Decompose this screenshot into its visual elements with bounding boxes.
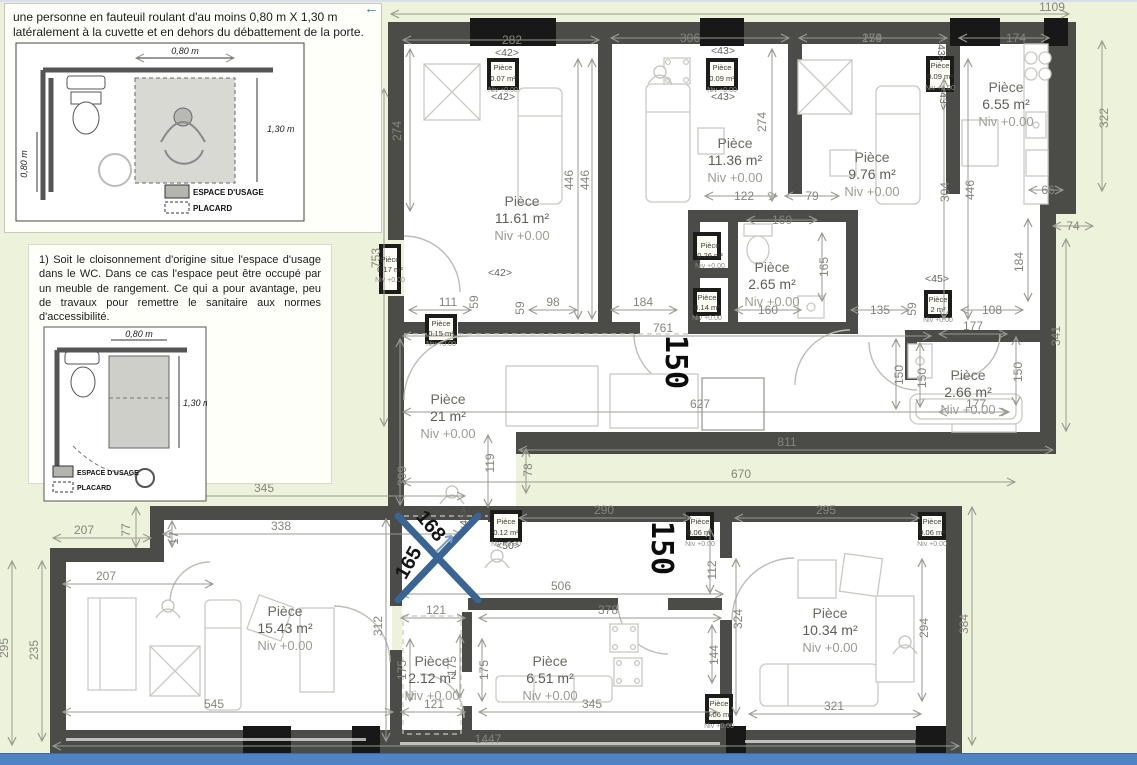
dim-label: 207 <box>74 523 94 537</box>
dim-label: 144 <box>707 645 721 665</box>
wc-sketch-1: 0,80 m 1,30 m 0,80 m ESPACE D'USAGE PLAC… <box>15 42 305 222</box>
svg-text:21 m²: 21 m² <box>430 408 466 424</box>
svg-text:Niv +0.00: Niv +0.00 <box>375 277 405 284</box>
dim-label: 378 <box>598 603 618 617</box>
dim-label: 121 <box>426 603 446 617</box>
svg-text:9.76 m²: 9.76 m² <box>848 166 896 182</box>
opening-marker: <45> <box>925 273 949 285</box>
dim-label: 59 <box>905 302 919 316</box>
svg-text:0.12 m²: 0.12 m² <box>493 528 519 537</box>
svg-text:0.17 m²: 0.17 m² <box>377 265 403 274</box>
dim-label: 282 <box>502 33 522 47</box>
dim-label: 79 <box>805 189 819 203</box>
svg-text:Niv +0.00: Niv +0.00 <box>707 170 762 185</box>
dim-label: 235 <box>27 640 41 660</box>
dim-label: 274 <box>755 112 769 132</box>
floorplan-page: 1109 1447 282 306 174 174 259 322 274 27… <box>0 0 1137 765</box>
svg-text:Niv +0.00: Niv +0.00 <box>923 317 953 324</box>
dim-label: 59 <box>513 301 527 315</box>
legend-placard-label: PLACARD <box>77 485 111 492</box>
svg-text:Pièce: Pièce <box>713 63 732 72</box>
dim-label: 295 <box>0 638 11 658</box>
dim-label: 670 <box>731 467 751 481</box>
svg-text:Pièce: Pièce <box>430 391 465 407</box>
dim-label: 338 <box>271 519 291 533</box>
dim-label: 78 <box>521 463 535 477</box>
svg-text:Pièce: Pièce <box>923 517 942 526</box>
dim-label: 506 <box>551 579 571 593</box>
dim-label: 175 <box>395 660 409 680</box>
note-text-1: une personne en fauteuil roulant d'au mo… <box>13 10 373 40</box>
dim-label: 74 <box>1066 219 1080 233</box>
back-arrow-icon: ← <box>364 0 379 17</box>
svg-text:Niv +0.00: Niv +0.00 <box>704 723 734 730</box>
svg-text:0.06 m²: 0.06 m² <box>706 710 732 719</box>
svg-text:Pièce: Pièce <box>950 367 985 383</box>
legend-swatch-usage <box>165 185 189 198</box>
svg-text:0.26 m²: 0.26 m² <box>697 251 723 260</box>
svg-text:Pièce: Pièce <box>701 241 720 250</box>
svg-text:Pièce: Pièce <box>929 295 948 304</box>
svg-text:Niv +0.00: Niv +0.00 <box>844 184 899 199</box>
dim-label: 174 <box>1006 31 1026 45</box>
toilet <box>73 102 99 134</box>
sink <box>67 76 105 89</box>
svg-text:2.66 m²: 2.66 m² <box>944 384 992 400</box>
legend-placard-label: PLACARD <box>193 204 232 213</box>
dim-label: 122 <box>734 189 754 203</box>
dim-label: 119 <box>483 453 497 472</box>
svg-text:Pièce: Pièce <box>497 517 516 526</box>
dim-label: 322 <box>1097 108 1111 128</box>
svg-text:0.14 m²: 0.14 m² <box>694 303 720 312</box>
svg-text:Niv +0.00: Niv +0.00 <box>978 114 1033 129</box>
dim-label: 177 <box>963 319 983 333</box>
dim-label: 399 <box>395 466 409 486</box>
svg-text:0.09 m²: 0.09 m² <box>927 72 953 81</box>
dim-label: 312 <box>371 616 385 636</box>
svg-text:0.06 m²: 0.06 m² <box>919 528 945 537</box>
svg-text:Pièce: Pièce <box>698 293 717 302</box>
dim-label: 112 <box>705 560 719 579</box>
inset-dim-right: 1,30 m <box>267 124 295 134</box>
svg-text:6.51 m²: 6.51 m² <box>526 670 574 686</box>
svg-text:Pièce: Pièce <box>532 653 567 669</box>
svg-text:Pièce: Pièce <box>812 605 847 621</box>
dim-label: 175 <box>477 660 491 680</box>
svg-text:Pièce: Pièce <box>754 259 789 275</box>
svg-text:Niv +0.00: Niv +0.00 <box>404 688 459 703</box>
dim-label: 108 <box>982 303 1002 317</box>
opening-marker: <43> <box>935 38 947 62</box>
dim-label: 66 <box>1041 183 1055 197</box>
svg-text:Niv +0.00: Niv +0.00 <box>802 640 857 655</box>
svg-text:Pièce: Pièce <box>931 61 950 70</box>
svg-text:Niv +0.00: Niv +0.00 <box>917 541 947 548</box>
svg-text:2 m²: 2 m² <box>931 305 947 314</box>
svg-text:Niv +0.00: Niv +0.00 <box>420 426 475 441</box>
svg-text:Niv +0.00: Niv +0.00 <box>257 638 312 653</box>
svg-text:0.06 m²: 0.06 m² <box>687 528 713 537</box>
dim-label: 98 <box>546 295 560 309</box>
svg-text:Niv +0.00: Niv +0.00 <box>522 688 577 703</box>
inset-dim-left: 0,80 m <box>19 150 29 178</box>
svg-text:Pièce: Pièce <box>988 79 1023 95</box>
opening-marker: <43> <box>711 45 735 57</box>
legend-swatch-usage <box>53 466 73 477</box>
svg-text:Niv +0.00: Niv +0.00 <box>940 402 995 417</box>
svg-text:Pièce: Pièce <box>381 255 400 264</box>
svg-text:2.65 m²: 2.65 m² <box>748 276 796 292</box>
big-dim-label: 150 <box>658 335 693 389</box>
dim-label: 290 <box>594 503 614 517</box>
toilet <box>71 367 95 397</box>
svg-text:Niv +0.00: Niv +0.00 <box>925 85 955 92</box>
inset-dim-top: 0,80 m <box>125 329 153 339</box>
legend-usage-label: ESPACE D'USAGE <box>77 470 139 477</box>
svg-text:Pièce: Pièce <box>494 63 513 72</box>
dim-label: 306 <box>680 31 700 45</box>
dim-label: 341 <box>1049 326 1063 346</box>
dim-label: 207 <box>96 569 116 583</box>
wc-sketch-2: 0,80 m 1,30 m ESPACE D'USAGE PLACARD <box>43 326 207 502</box>
dim-label: 184 <box>1012 252 1026 272</box>
legend-swatch-placard <box>165 202 189 213</box>
bottom-scrollbar[interactable] <box>0 753 1137 765</box>
legend-usage-label: ESPACE D'USAGE <box>193 188 264 197</box>
dim-label: 304 <box>938 182 952 202</box>
svg-text:2.12 m²: 2.12 m² <box>408 670 456 686</box>
dim-label: 150 <box>915 368 929 388</box>
dim-label: 160 <box>772 213 792 227</box>
usage-area <box>109 356 169 448</box>
svg-text:Niv +0.00: Niv +0.00 <box>488 87 518 94</box>
dim-label: 321 <box>824 699 844 713</box>
dim-label: 17 <box>167 531 181 545</box>
svg-text:Niv +0.00: Niv +0.00 <box>491 541 521 548</box>
dim-label: 811 <box>777 435 796 449</box>
dim-label: 135 <box>870 303 890 317</box>
dim-label: 111 <box>439 295 458 309</box>
svg-text:6.55 m²: 6.55 m² <box>982 96 1030 112</box>
svg-text:0.15 m²: 0.15 m² <box>428 329 454 338</box>
svg-text:Pièce: Pièce <box>691 517 710 526</box>
opening-marker: <42> <box>488 267 512 279</box>
svg-text:10.34 m²: 10.34 m² <box>802 622 858 638</box>
svg-text:Pièce: Pièce <box>267 603 302 619</box>
dim-label: 446 <box>963 180 977 200</box>
svg-text:Niv +0.00: Niv +0.00 <box>707 87 737 94</box>
svg-text:Pièce: Pièce <box>432 319 451 328</box>
svg-text:Pièce: Pièce <box>504 193 539 209</box>
dim-label: 295 <box>816 503 836 517</box>
sink <box>65 352 99 364</box>
dim-label: 165 <box>817 257 831 277</box>
dim-label: 59 <box>467 295 481 309</box>
dim-label: 294 <box>917 618 931 638</box>
svg-text:0.07 m²: 0.07 m² <box>490 74 516 83</box>
svg-text:Niv +0.00: Niv +0.00 <box>685 541 715 548</box>
svg-text:Niv +0.00: Niv +0.00 <box>692 315 722 322</box>
dim-label: 446 <box>562 170 576 190</box>
svg-text:0.09 m²: 0.09 m² <box>709 74 735 83</box>
svg-text:Pièce: Pièce <box>710 699 729 708</box>
note-panel-2: 1) Soit le cloisonnement d'origine situe… <box>28 244 332 484</box>
dim-label: 77 <box>119 523 133 537</box>
svg-text:Pièce: Pièce <box>854 149 889 165</box>
dim-label: 446 <box>578 170 592 190</box>
dim-label: 324 <box>731 609 745 629</box>
dim-label: 259 <box>862 31 882 45</box>
dim-label: 274 <box>390 121 404 141</box>
svg-text:Pièce: Pièce <box>717 135 752 151</box>
dim-label: 545 <box>204 697 224 711</box>
dim-label: 1109 <box>1039 0 1065 14</box>
svg-text:11.61 m²: 11.61 m² <box>495 210 550 226</box>
dim-label: 150 <box>892 365 906 385</box>
dim-label: 345 <box>582 697 602 711</box>
svg-text:15.43 m²: 15.43 m² <box>257 620 313 636</box>
dim-label: 384 <box>957 614 971 634</box>
legend-swatch-placard <box>53 482 73 492</box>
svg-text:Niv +0.00: Niv +0.00 <box>426 341 456 348</box>
inset-dim-right: 1,30 m <box>183 398 207 408</box>
dim-label: 627 <box>690 397 710 411</box>
note-text-2: 1) Soit le cloisonnement d'origine situe… <box>39 253 321 324</box>
svg-text:Pièce: Pièce <box>414 653 449 669</box>
svg-text:Niv +0.00: Niv +0.00 <box>744 294 799 309</box>
dim-label: 761 <box>653 321 673 335</box>
note-panel-1: une personne en fauteuil roulant d'au mo… <box>4 3 382 233</box>
dim-label: 184 <box>633 295 653 309</box>
svg-text:11.36 m²: 11.36 m² <box>708 152 763 168</box>
dim-label: 150 <box>1011 362 1025 382</box>
dim-label: 1447 <box>475 732 502 746</box>
svg-text:Niv +0.00: Niv +0.00 <box>494 228 549 243</box>
usage-area <box>135 78 235 183</box>
opening-marker: <42> <box>495 47 519 59</box>
svg-text:Niv +0.00: Niv +0.00 <box>695 263 725 270</box>
big-dim-label: 150 <box>644 521 679 575</box>
inset-dim-top: 0,80 m <box>171 46 199 56</box>
